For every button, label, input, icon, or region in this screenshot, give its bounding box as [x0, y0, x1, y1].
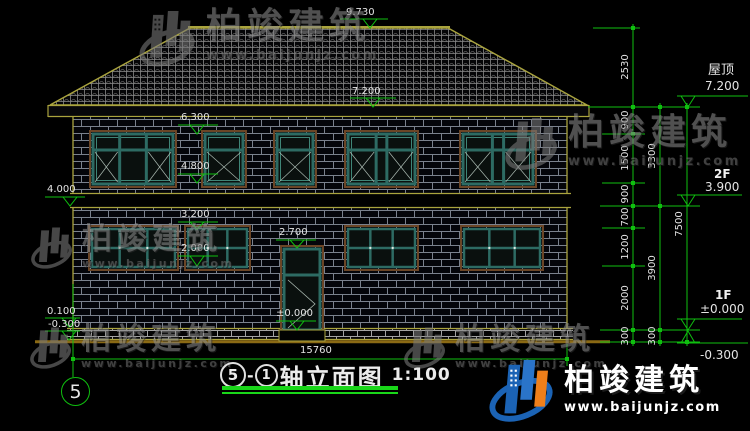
elevation-mark-text: 15760 [300, 346, 332, 356]
company-logo: 柏竣建筑 www.baijunjz.com [488, 356, 721, 428]
chain-dimension-text: 900 [621, 184, 631, 203]
chain-dimension-text: 3300 [648, 143, 658, 168]
level-value-2f: 3.900 [705, 181, 739, 193]
elevation-mark-text: -0.300 [48, 320, 80, 330]
elevation-mark-text: 3.200 [181, 210, 210, 220]
title-scale: 1:100 [392, 365, 451, 385]
chain-dimension-text: 300 [621, 326, 631, 345]
level-value-1f: ±0.000 [700, 303, 744, 315]
chain-dimension-text: 1500 [621, 145, 631, 170]
elevation-mark-text: 9.730 [346, 8, 375, 18]
company-logo-brand: 柏竣建筑 [564, 366, 721, 396]
company-logo-icon [488, 356, 556, 428]
chain-dimension-text: 700 [621, 207, 631, 226]
elevation-mark-text: ±0.000 [276, 309, 313, 319]
chain-dimension-text: 2530 [621, 54, 631, 79]
title-axis-start: 5 [228, 366, 238, 384]
level-label-roof: 屋顶 [708, 64, 734, 77]
title-axis-end: 1 [262, 368, 271, 383]
chain-dimension-text: 900 [621, 110, 631, 129]
axis-bubble: 5 [61, 377, 90, 406]
title-axis-end-bubble: 1 [255, 364, 278, 387]
title-underline-thick [222, 386, 398, 390]
elevation-mark-text: 7.200 [352, 87, 381, 97]
chain-dimension-text: 3900 [648, 255, 658, 280]
elevation-mark-text: 2.000 [181, 244, 210, 254]
level-label-2f: 2F [714, 168, 731, 180]
chain-dimension-text: 1200 [621, 234, 631, 259]
title-separator: - [247, 366, 254, 385]
elevation-mark-text: 6.300 [181, 113, 210, 123]
elevation-mark-text: 2.700 [279, 228, 308, 238]
elevation-mark-text: 4.000 [47, 185, 76, 195]
elevation-mark-text: 4.800 [181, 162, 210, 172]
chain-dimension-text: 7500 [675, 211, 685, 236]
chain-dimension-text: 2000 [621, 285, 631, 310]
axis-bubble-number: 5 [69, 381, 81, 403]
level-value-roof: 7.200 [705, 80, 739, 92]
chain-dimension-text: 300 [648, 326, 658, 345]
elevation-mark-text: 0.100 [47, 307, 76, 317]
building-elevation [35, 27, 610, 342]
cad-elevation-drawing: 9.7307.2006.3004.8004.0003.2002.0002.700… [0, 0, 750, 431]
title-underline-thin [222, 392, 398, 394]
title-axis-start-bubble: 5 [220, 362, 246, 388]
company-logo-url: www.baijunjz.com [564, 400, 721, 415]
level-label-1f: 1F [715, 289, 732, 301]
